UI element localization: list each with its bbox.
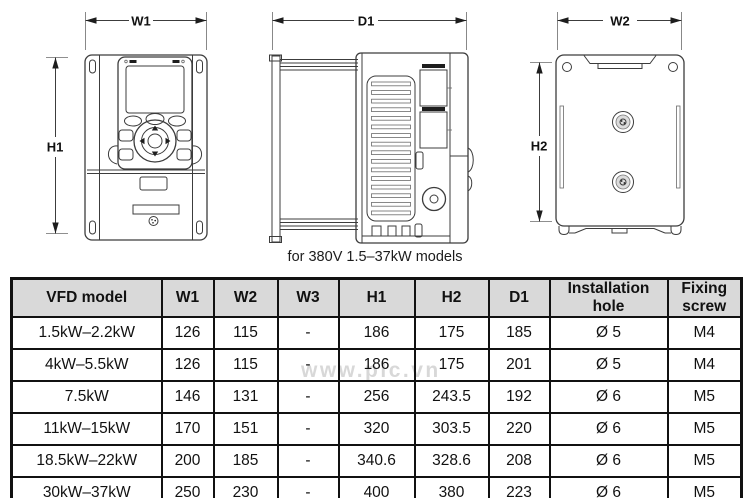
led-indicator xyxy=(173,60,180,63)
mounting-hole xyxy=(563,63,572,72)
cell: - xyxy=(278,381,339,413)
table-header-row: VFD model W1 W2 W3 H1 H2 D1 Installation… xyxy=(12,279,742,318)
cell: - xyxy=(278,349,339,381)
keypad-button xyxy=(119,149,133,160)
col-header-h2: H2 xyxy=(415,279,489,318)
cell: 328.6 xyxy=(415,445,489,477)
cell: - xyxy=(278,477,339,498)
mounting-hole xyxy=(669,63,678,72)
col-header-fixing-screw: Fixing screw xyxy=(668,279,742,318)
cell: 250 xyxy=(162,477,214,498)
col-header-model: VFD model xyxy=(12,279,162,318)
vent-slot xyxy=(133,205,179,214)
cell: M5 xyxy=(668,413,742,445)
cell: 151 xyxy=(214,413,278,445)
cell: 126 xyxy=(162,349,214,381)
cell: 200 xyxy=(162,445,214,477)
side-view-drawing: D1 xyxy=(270,12,474,243)
cover-screw xyxy=(149,217,158,226)
cell: 400 xyxy=(339,477,415,498)
terminal-block xyxy=(420,112,447,148)
cell: M4 xyxy=(668,317,742,349)
terminal-block xyxy=(420,70,447,106)
mounting-slot xyxy=(197,221,203,234)
mounting-slot xyxy=(197,60,203,73)
cell: 185 xyxy=(489,317,550,349)
cell: M5 xyxy=(668,381,742,413)
cell: Ø 6 xyxy=(550,477,668,498)
keypad-button xyxy=(177,130,191,141)
cell: 146 xyxy=(162,381,214,413)
cell: 175 xyxy=(415,317,489,349)
fan-icon xyxy=(423,188,446,211)
table-row: 1.5kW–2.2kW 126 115 - 186 175 185 Ø 5 M4 xyxy=(12,317,742,349)
table-row: 18.5kW–22kW 200 185 - 340.6 328.6 208 Ø … xyxy=(12,445,742,477)
keypad-button xyxy=(119,130,133,141)
cell: Ø 5 xyxy=(550,349,668,381)
cell-model: 1.5kW–2.2kW xyxy=(12,317,162,349)
back-view-drawing: W2 H2 xyxy=(530,12,684,235)
cell: 115 xyxy=(214,349,278,381)
page: W1 H1 xyxy=(0,0,750,498)
heatsink-vent-panel xyxy=(367,76,415,221)
cell: 115 xyxy=(214,317,278,349)
cell: 170 xyxy=(162,413,214,445)
w1-dimension-label: W1 xyxy=(131,14,151,29)
col-header-installation-hole: Installation hole xyxy=(550,279,668,318)
nameplate xyxy=(140,177,167,190)
h1-dimension-label: H1 xyxy=(47,140,64,155)
cell: M5 xyxy=(668,477,742,498)
w2-dimension-label: W2 xyxy=(610,14,630,29)
cell: Ø 6 xyxy=(550,413,668,445)
cell: 230 xyxy=(214,477,278,498)
cell: Ø 5 xyxy=(550,317,668,349)
keypad-display xyxy=(126,66,184,113)
h2-dimension-label: H2 xyxy=(531,139,548,154)
d1-dimension-label: D1 xyxy=(358,14,375,29)
cell: - xyxy=(278,413,339,445)
col-header-w3: W3 xyxy=(278,279,339,318)
caption: for 380V 1.5–37kW models xyxy=(0,249,750,265)
cell: 126 xyxy=(162,317,214,349)
front-view-drawing: W1 H1 xyxy=(46,12,207,240)
cell: Ø 6 xyxy=(550,445,668,477)
cell: 131 xyxy=(214,381,278,413)
cell-model: 30kW–37kW xyxy=(12,477,162,498)
cell: 223 xyxy=(489,477,550,498)
cell: 201 xyxy=(489,349,550,381)
mounting-slot xyxy=(90,60,96,73)
cell-model: 7.5kW xyxy=(12,381,162,413)
table-row: 4kW–5.5kW 126 115 - 186 175 201 Ø 5 M4 xyxy=(12,349,742,381)
keypad-button xyxy=(146,114,164,125)
cell: Ø 6 xyxy=(550,381,668,413)
col-header-d1: D1 xyxy=(489,279,550,318)
dimension-drawings: W1 H1 xyxy=(0,0,750,250)
col-header-w2: W2 xyxy=(214,279,278,318)
cell: 185 xyxy=(214,445,278,477)
cell-model: 18.5kW–22kW xyxy=(12,445,162,477)
screw-boss xyxy=(613,112,634,133)
cell: - xyxy=(278,317,339,349)
cell: 340.6 xyxy=(339,445,415,477)
cell: - xyxy=(278,445,339,477)
keypad-button xyxy=(177,149,191,160)
col-header-h1: H1 xyxy=(339,279,415,318)
cell: 256 xyxy=(339,381,415,413)
keypad-button xyxy=(169,116,186,126)
heatsink-fins xyxy=(372,82,411,215)
cell: 303.5 xyxy=(415,413,489,445)
cell: 192 xyxy=(489,381,550,413)
mounting-slot xyxy=(90,221,96,234)
screw-boss xyxy=(613,172,634,193)
table-row: 11kW–15kW 170 151 - 320 303.5 220 Ø 6 M5 xyxy=(12,413,742,445)
cell: 320 xyxy=(339,413,415,445)
led-indicator xyxy=(130,60,137,63)
cell-model: 11kW–15kW xyxy=(12,413,162,445)
dimensions-table: VFD model W1 W2 W3 H1 H2 D1 Installation… xyxy=(10,277,743,498)
table-row: 30kW–37kW 250 230 - 400 380 223 Ø 6 M5 xyxy=(12,477,742,498)
cell-model: 4kW–5.5kW xyxy=(12,349,162,381)
cell: 186 xyxy=(339,317,415,349)
cell: M5 xyxy=(668,445,742,477)
keypad-button xyxy=(125,116,142,126)
cell: 186 xyxy=(339,349,415,381)
table-row: 7.5kW 146 131 - 256 243.5 192 Ø 6 M5 xyxy=(12,381,742,413)
col-header-w1: W1 xyxy=(162,279,214,318)
cell: 208 xyxy=(489,445,550,477)
cell: M4 xyxy=(668,349,742,381)
cell: 243.5 xyxy=(415,381,489,413)
cell: 220 xyxy=(489,413,550,445)
cell: 380 xyxy=(415,477,489,498)
cell: 175 xyxy=(415,349,489,381)
